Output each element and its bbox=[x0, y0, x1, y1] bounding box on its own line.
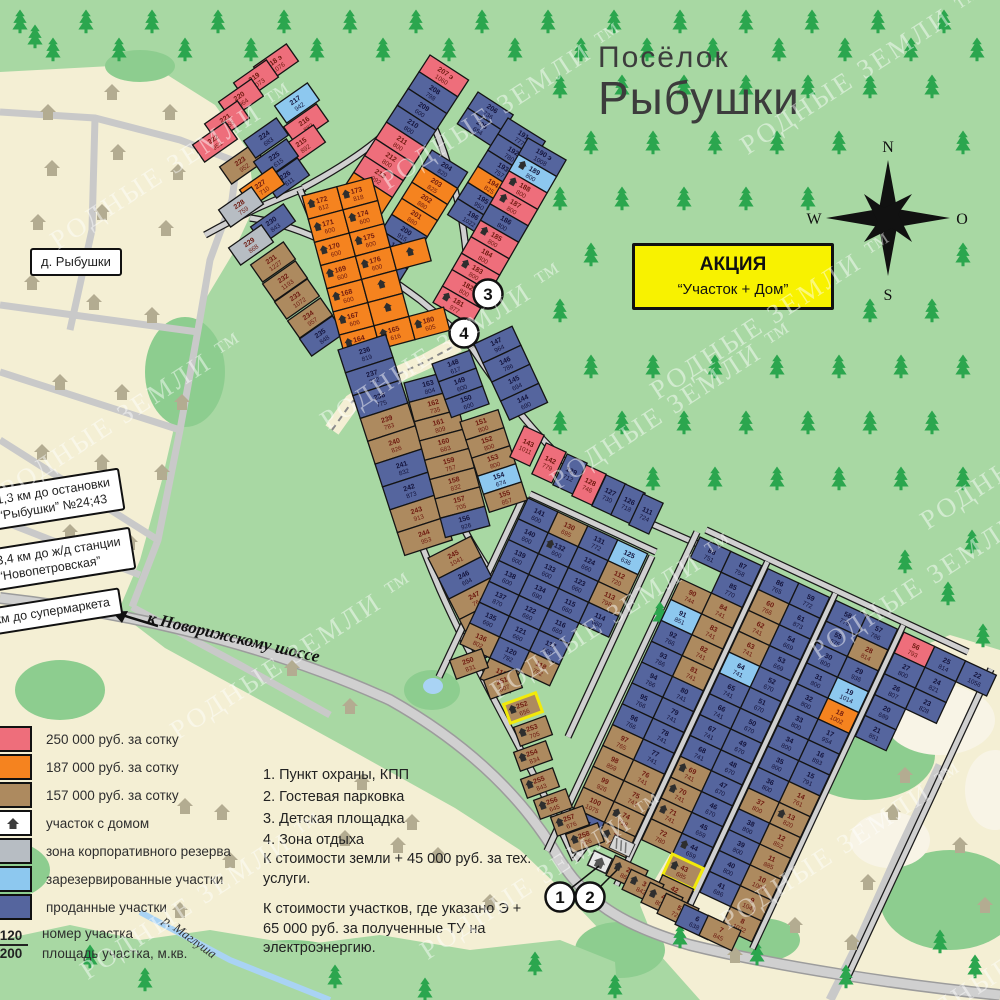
plot-number-key: 120200 bbox=[0, 928, 28, 961]
legend-item: проданные участки bbox=[0, 896, 260, 918]
promo-title: АКЦИЯ bbox=[639, 254, 827, 276]
legend-item: 157 000 руб. за сотку bbox=[0, 784, 260, 806]
poi-list: 1. Пункт охраны, КПП2. Гостевая парковка… bbox=[263, 765, 409, 852]
legend-swatch-T bbox=[0, 782, 32, 808]
plot-key-labels: номер участкаплощадь участка, м.кв. bbox=[42, 924, 187, 965]
village-label: д. Рыбушки bbox=[30, 248, 122, 276]
svg-text:4: 4 bbox=[459, 324, 469, 343]
legend-item: участок с домом bbox=[0, 812, 260, 834]
poi-item: 4. Зона отдыха bbox=[263, 830, 409, 852]
poi-item: 2. Гостевая парковка bbox=[263, 787, 409, 809]
grass-patch bbox=[15, 660, 105, 720]
map-marker-1[interactable]: 1 bbox=[546, 883, 575, 912]
map-marker-3[interactable]: 3 bbox=[474, 280, 503, 309]
page-title: Посёлок Рыбушки bbox=[598, 42, 800, 122]
svg-text:O: O bbox=[956, 211, 968, 228]
legend: 250 000 руб. за сотку 187 000 руб. за со… bbox=[0, 728, 260, 971]
legend-swatch-O bbox=[0, 754, 32, 780]
svg-text:W: W bbox=[806, 211, 822, 228]
house-icon bbox=[6, 817, 20, 830]
title-small: Посёлок bbox=[598, 42, 800, 74]
promo-subtitle: “Участок + Дом” bbox=[639, 281, 827, 298]
legend-swatch-R bbox=[0, 726, 32, 752]
svg-text:3: 3 bbox=[483, 285, 492, 304]
note-services: К стоимости земли + 45 000 руб. за тех. … bbox=[263, 850, 533, 889]
note-electricity: К стоимости участков, где указано Э + 65… bbox=[263, 900, 533, 959]
promo-banner[interactable]: АКЦИЯ “Участок + Дом” bbox=[632, 243, 834, 310]
map-screenshot: 218 э10762191073220964221855222951223952… bbox=[0, 0, 1000, 1000]
svg-text:1: 1 bbox=[555, 888, 564, 907]
legend-swatch-G bbox=[0, 838, 32, 864]
pond bbox=[423, 678, 443, 694]
legend-swatch-B bbox=[0, 894, 32, 920]
legend-swatch-W bbox=[0, 810, 32, 836]
map-marker-2[interactable]: 2 bbox=[576, 883, 605, 912]
svg-text:S: S bbox=[884, 287, 893, 304]
map-marker-4[interactable]: 4 bbox=[450, 319, 479, 348]
poi-item: 1. Пункт охраны, КПП bbox=[263, 765, 409, 787]
legend-item: зона корпоративного резерва bbox=[0, 840, 260, 862]
poi-item: 3. Детская площадка bbox=[263, 809, 409, 831]
legend-item: 250 000 руб. за сотку bbox=[0, 728, 260, 750]
svg-text:N: N bbox=[882, 139, 894, 156]
title-big: Рыбушки bbox=[598, 74, 800, 122]
notes: К стоимости земли + 45 000 руб. за тех. … bbox=[263, 850, 533, 970]
legend-swatch-L bbox=[0, 866, 32, 892]
legend-item: зарезервированные участки bbox=[0, 868, 260, 890]
legend-item: 187 000 руб. за сотку bbox=[0, 756, 260, 778]
svg-text:2: 2 bbox=[585, 888, 594, 907]
